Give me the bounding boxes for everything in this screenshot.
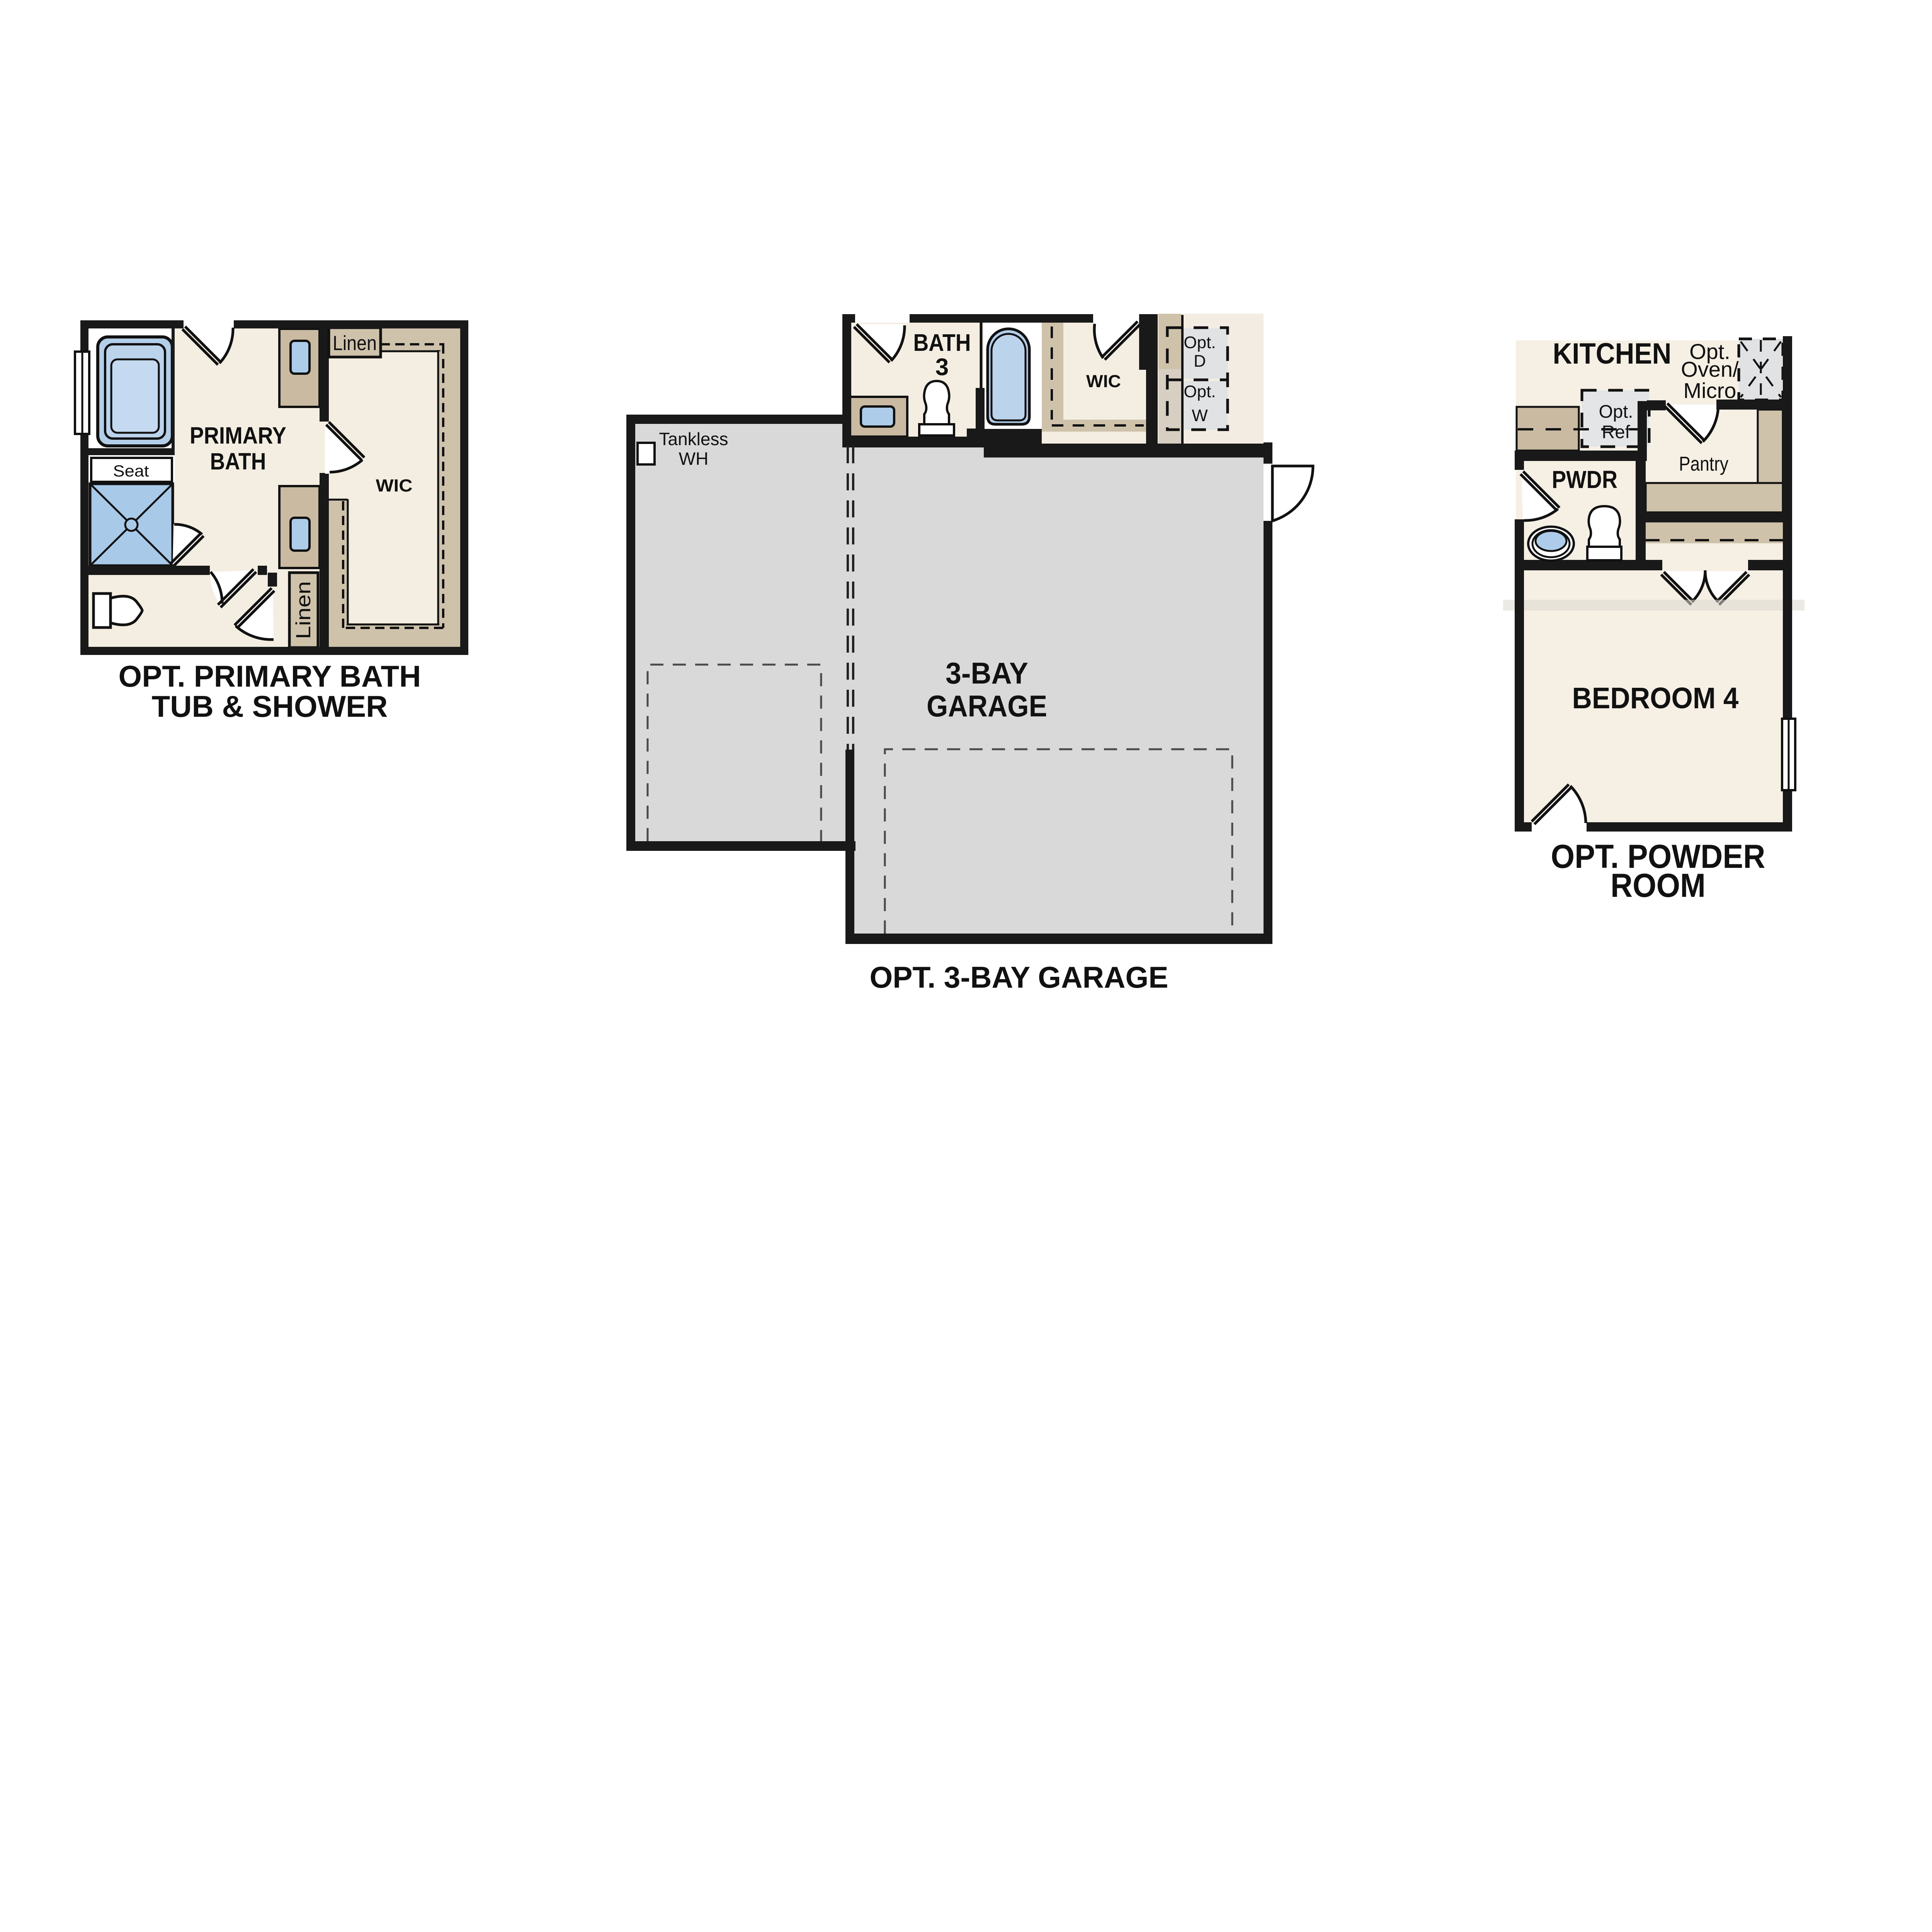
svg-text:Opt.: Opt. [1599, 401, 1633, 422]
svg-text:PWDR: PWDR [1552, 466, 1617, 493]
svg-text:Opt.: Opt. [1184, 333, 1216, 352]
svg-text:Seat: Seat [113, 462, 149, 480]
svg-text:PRIMARY: PRIMARY [190, 422, 286, 449]
svg-text:Ref: Ref [1602, 422, 1630, 442]
svg-text:W: W [1192, 406, 1208, 425]
svg-text:OPT. PRIMARY BATH: OPT. PRIMARY BATH [119, 659, 421, 693]
svg-text:Tankless: Tankless [659, 429, 728, 449]
svg-text:WIC: WIC [1086, 371, 1121, 391]
svg-text:Linen: Linen [333, 332, 377, 355]
svg-text:GARAGE: GARAGE [927, 689, 1047, 723]
svg-text:TUB & SHOWER: TUB & SHOWER [152, 689, 388, 723]
svg-text:BATH: BATH [210, 448, 266, 474]
svg-text:3-BAY: 3-BAY [946, 656, 1028, 690]
svg-text:Opt.: Opt. [1184, 382, 1216, 401]
svg-text:Linen: Linen [292, 581, 315, 639]
svg-text:D: D [1194, 352, 1206, 371]
svg-text:Pantry: Pantry [1679, 453, 1728, 475]
svg-text:BATH: BATH [913, 330, 971, 356]
svg-text:WH: WH [679, 449, 709, 469]
svg-text:ROOM: ROOM [1611, 867, 1706, 904]
svg-text:KITCHEN: KITCHEN [1553, 337, 1672, 370]
svg-text:Oven/: Oven/ [1681, 357, 1739, 381]
svg-text:3: 3 [935, 354, 949, 381]
svg-text:Micro: Micro [1684, 378, 1736, 403]
svg-text:BEDROOM 4: BEDROOM 4 [1572, 682, 1739, 715]
svg-text:WIC: WIC [376, 476, 413, 495]
svg-text:OPT. 3-BAY GARAGE: OPT. 3-BAY GARAGE [870, 960, 1168, 994]
